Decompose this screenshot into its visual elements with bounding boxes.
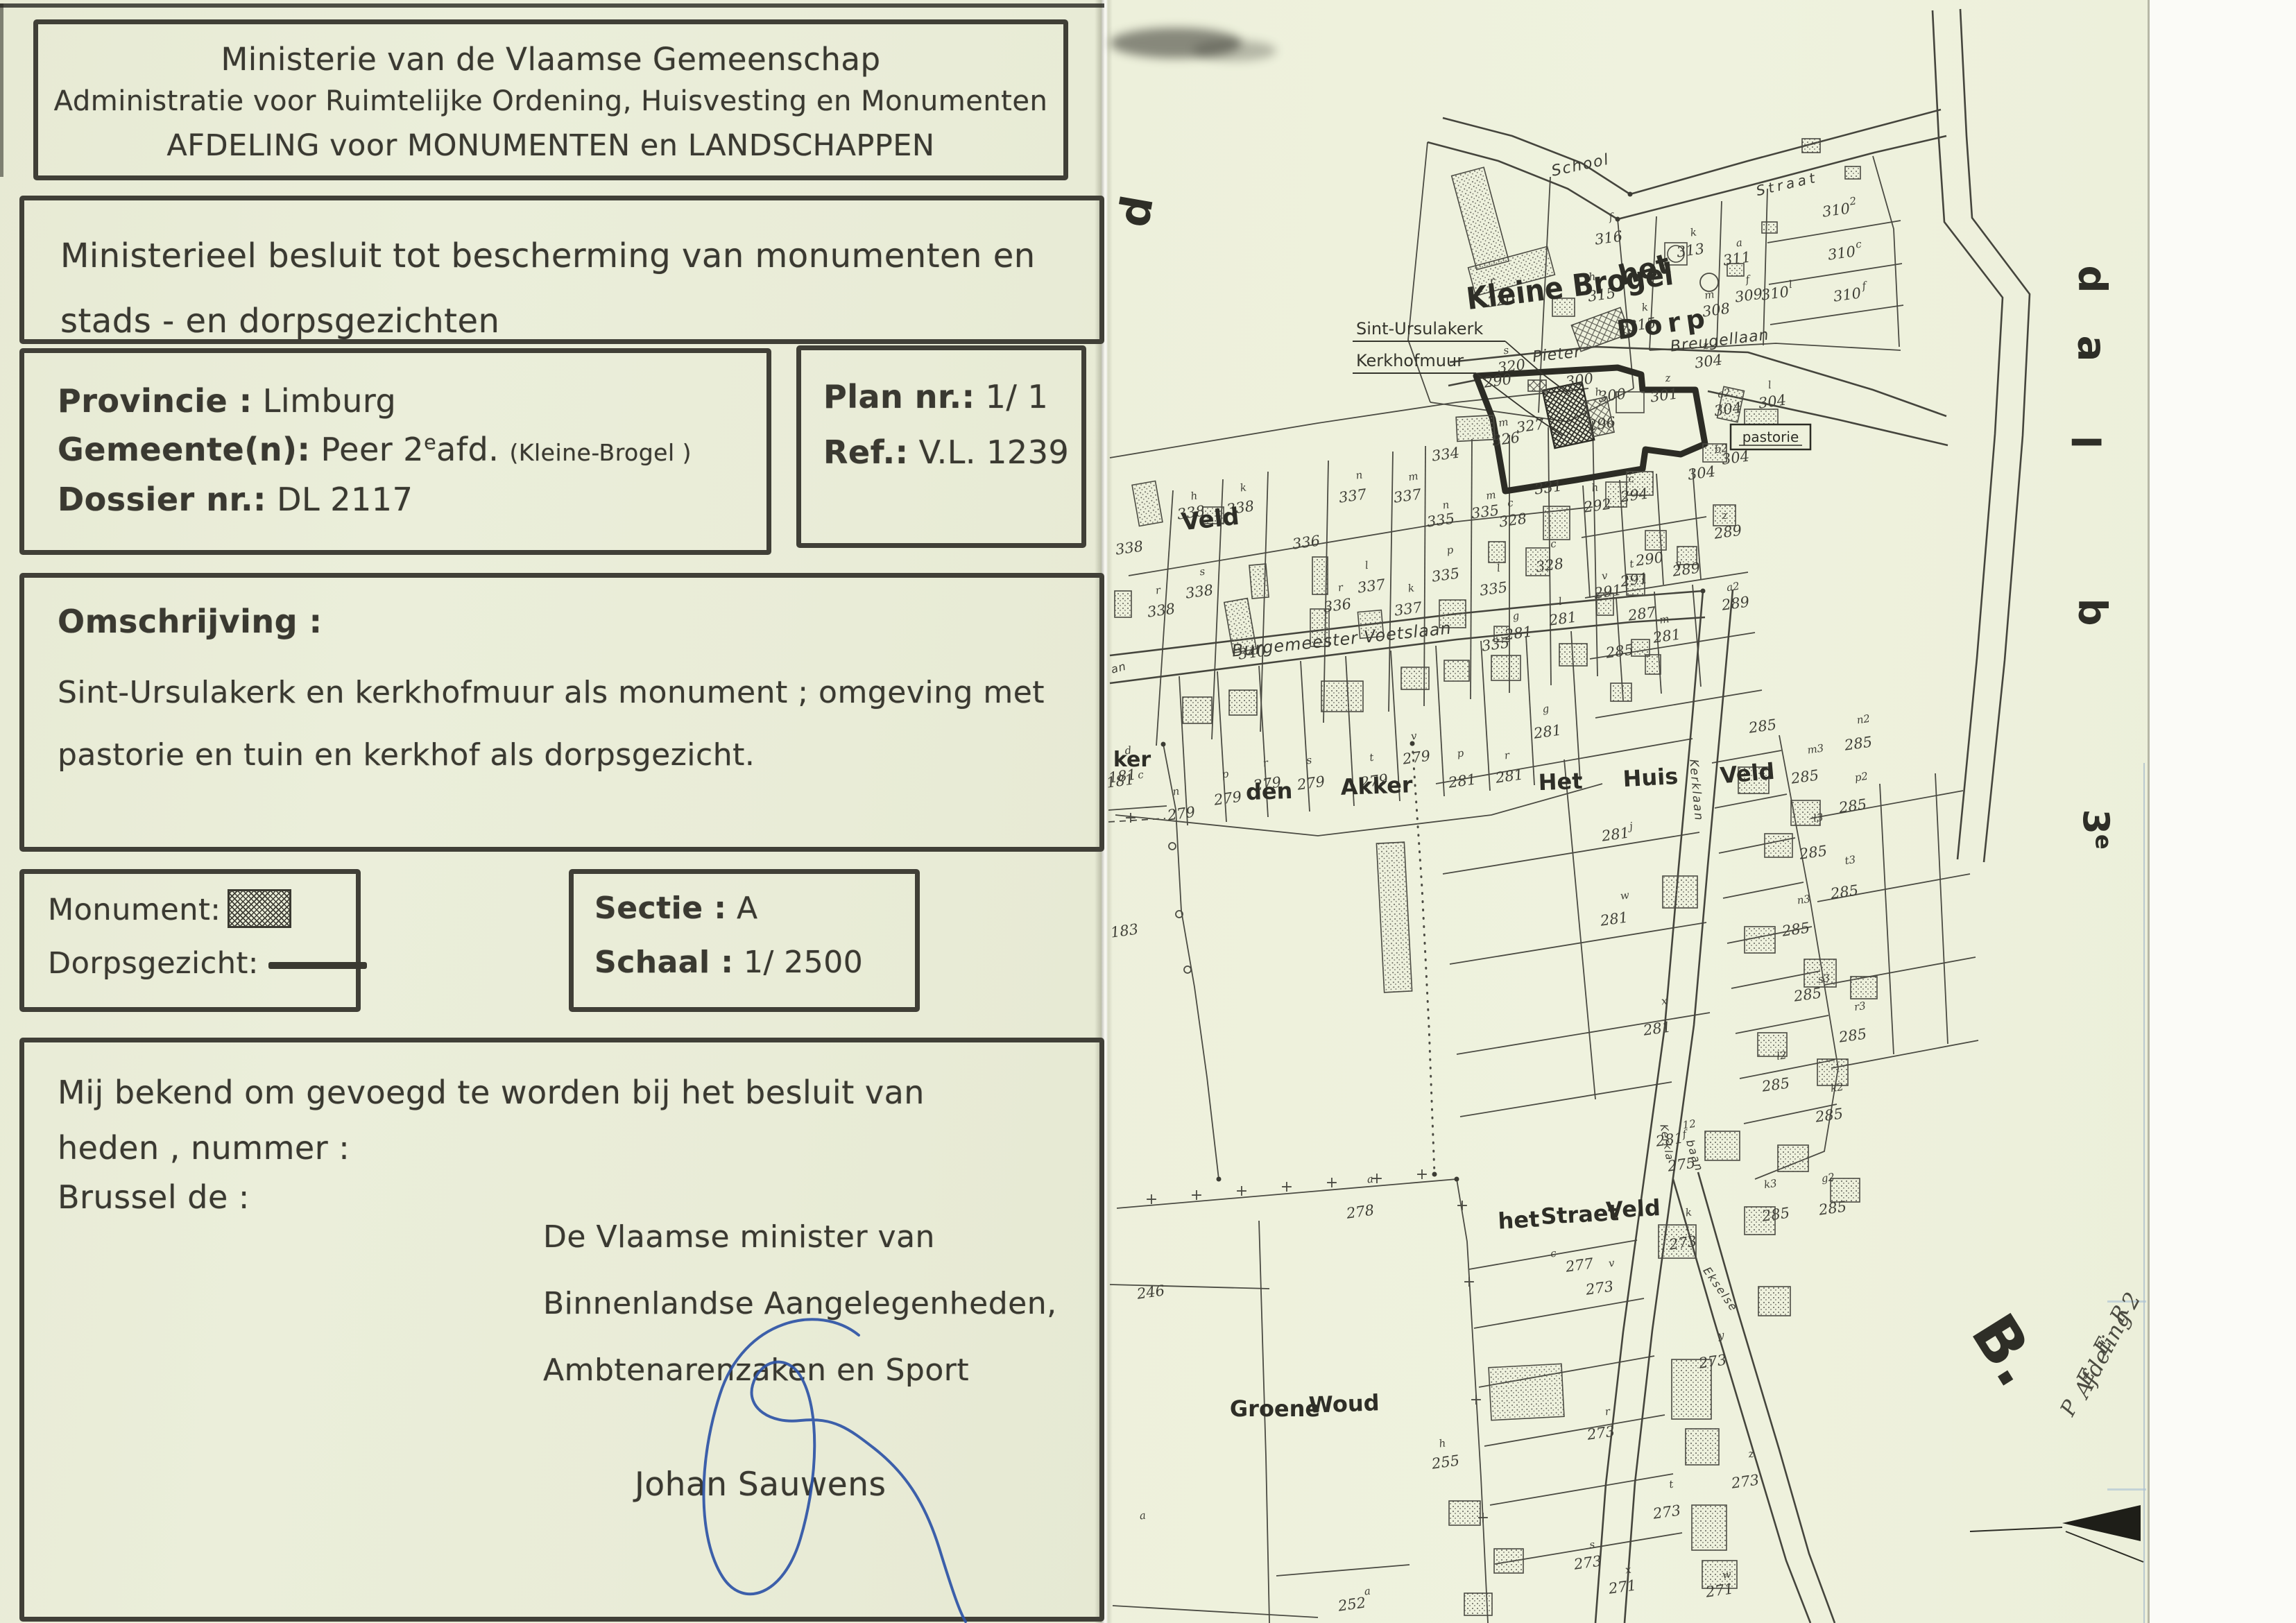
monument-label: Monument: (48, 893, 221, 927)
parcel-label: r (1337, 581, 1344, 594)
building (1456, 415, 1495, 442)
parcel-label: 310 (1833, 284, 1862, 304)
building (1845, 166, 1860, 179)
parcel-label: l2 (1776, 1049, 1788, 1063)
parcel-label: 304 (1758, 391, 1788, 411)
parcel-label: 252 (1337, 1594, 1367, 1614)
boundary-cross: + (1190, 1187, 1203, 1204)
parcel-label: m (1498, 415, 1509, 429)
parcel-label: l3 (1813, 811, 1824, 825)
plan-box: Plan nr.: 1/ 1 Ref.: V.L. 1239 (796, 345, 1086, 548)
parcel-label: 304 (1687, 463, 1717, 483)
parcel-label: k (1690, 226, 1698, 239)
road-line (1625, 590, 1733, 1623)
parcel-label: 285 (1760, 1204, 1791, 1224)
building (1543, 506, 1570, 540)
province-label: Provincie : (58, 382, 252, 420)
parcel-label: g (1511, 609, 1520, 622)
parcel-label: a2 (1726, 580, 1740, 594)
sheet-word-letter: a (2068, 336, 2114, 362)
parcel-label: s3 (1817, 972, 1831, 986)
parcel-label: 337 (1394, 599, 1424, 619)
building (1115, 591, 1131, 617)
parcel-boundary (1824, 957, 1976, 985)
parcel-label: l (1558, 595, 1563, 608)
parcel-label: k3 (1763, 1177, 1778, 1191)
municipality-sup: e (424, 431, 436, 454)
boundary-dot (1628, 192, 1633, 197)
parcel-boundary (1276, 1565, 1410, 1576)
parcel-label: 273 (1573, 1552, 1603, 1572)
building (1758, 1287, 1790, 1316)
parcel-boundary (1770, 305, 1903, 325)
area-label: Veld (1180, 503, 1240, 537)
municipality-label: Gemeente(n): (58, 431, 310, 468)
dossier-value: DL 2117 (277, 481, 413, 518)
parcel-label: t (1369, 751, 1375, 764)
parcel-label: 291 (1593, 581, 1623, 601)
parcel-label: 285 (1843, 733, 1874, 753)
description-box: Omschrijving : Sint-Ursulakerk en kerkho… (19, 573, 1104, 852)
sectie-label: Sectie : (594, 891, 726, 926)
parcel-label: b2 (1714, 442, 1729, 456)
building (1765, 834, 1792, 857)
scanned-decree-page: Ministerie van de Vlaamse Gemeenschap Ad… (0, 0, 2296, 1623)
building (1489, 1364, 1564, 1420)
building (1464, 1593, 1492, 1615)
parcel-label: w (1620, 888, 1630, 902)
parcel-boundary (1108, 806, 1167, 810)
parcel-label: 290 (1634, 549, 1665, 569)
parcel-label: r3 (1853, 999, 1867, 1013)
sheet-number: 3e (2074, 809, 2116, 850)
survey-point (1169, 843, 1176, 850)
monument-building (1543, 382, 1594, 448)
parcel-label: v (1410, 729, 1418, 742)
parcel-boundary (1810, 791, 1963, 818)
parcel-label: g2 (1821, 1171, 1835, 1185)
parcel-boundary (1260, 472, 1268, 732)
parcel-boundary (1656, 474, 1663, 585)
parcel-label: s (1199, 565, 1206, 578)
parcel-label: t (1629, 558, 1635, 571)
parcel-label: 310 (1760, 283, 1790, 303)
parcel-label: v (1601, 569, 1609, 582)
building (1183, 697, 1212, 723)
legend-box: Monument: Dorpsgezicht: (19, 869, 361, 1012)
ref-value: V.L. 1239 (919, 433, 1070, 471)
parcel-label: 285 (1837, 1025, 1868, 1045)
parcel-label: 279 (1213, 788, 1243, 808)
survey-point (1184, 966, 1191, 973)
parcel-label: 327 (1516, 415, 1546, 436)
parcel-label: t (1668, 1478, 1674, 1491)
parcel-label: l (1496, 562, 1501, 575)
parcel-label: 289 (1720, 593, 1751, 613)
location-box: Provincie : Limburg Gemeente(n): Peer 2e… (19, 348, 771, 555)
parcel-label: n (1441, 498, 1450, 511)
parcel-boundary (1481, 641, 1490, 791)
plan-value: 1/ 1 (986, 378, 1049, 415)
parcel-label: p (1446, 543, 1454, 556)
parcel-label: r (1262, 757, 1269, 770)
parcel-label: k (1407, 582, 1416, 595)
building (1489, 542, 1505, 563)
boundary-cross: + (1280, 1178, 1293, 1196)
boundary-dot (1455, 1177, 1459, 1182)
dorpsgezicht-line-swatch (268, 962, 367, 969)
parcel-label: 285 (1837, 796, 1868, 816)
decree-line2: stads - en dorpsgezichten (60, 302, 499, 341)
parcel-label: 311 (1722, 248, 1752, 268)
parcel-boundary (1457, 1013, 1710, 1054)
parcel-label: 278 (1345, 1201, 1376, 1221)
decree-line1: Ministerieel besluit tot bescherming van… (60, 237, 1036, 275)
parcel-label: 285 (1747, 716, 1778, 736)
parcel-label: 335 (1479, 578, 1509, 599)
sectie-row: Sectie : A (594, 891, 758, 926)
parcel-boundary (1259, 1221, 1269, 1623)
parcel-label: 338 (1115, 538, 1145, 558)
parcel-label: 326 (1491, 429, 1521, 449)
boundary-cross: + (1463, 1273, 1475, 1291)
parcel-label: n (1172, 784, 1180, 798)
parcel-label: 285 (1792, 984, 1823, 1004)
parcel-label: 336 (1292, 532, 1321, 552)
parcel-label: 279 (1296, 773, 1326, 793)
plan-label: Plan nr.: (823, 378, 975, 415)
boundary-dot (1161, 742, 1166, 747)
parcel-label: k (1240, 481, 1248, 495)
parcel-label: y (1717, 1328, 1725, 1341)
parcel-label: 281 (1548, 608, 1578, 628)
section-box: Sectie : A Schaal : 1/ 2500 (569, 869, 920, 1012)
building (1494, 1549, 1523, 1573)
parcel-label: w (1722, 1568, 1732, 1581)
parcel-boundary (1460, 1082, 1672, 1117)
parcel-label: k (1685, 1206, 1693, 1219)
dorpsgezicht-label: Dorpsgezicht: (48, 946, 259, 981)
street-label: Kerklaan (1686, 759, 1706, 823)
north-arrow-wedge (2062, 1505, 2141, 1541)
building (1229, 690, 1257, 715)
parcel-label: 279 (1401, 747, 1432, 767)
parcel-label: m (1659, 612, 1670, 626)
parcel-label: h (1591, 481, 1599, 494)
parcel-label: k2 (1830, 1081, 1844, 1094)
building (1321, 681, 1363, 712)
building (1802, 139, 1820, 153)
parcel-label: l (1788, 278, 1793, 291)
parcel-label: 328 (1535, 555, 1565, 575)
parcel-label: a (1364, 1585, 1371, 1598)
municipality-value: Peer 2 (321, 431, 425, 468)
dotted-boundary (1412, 744, 1434, 1174)
boundary-dot (1616, 217, 1620, 222)
building (1686, 1429, 1719, 1465)
parcel-label: 281 (1447, 771, 1477, 791)
building (1745, 927, 1775, 953)
callout-label: Kerkhofmuur (1356, 351, 1464, 370)
monument-hatch-swatch (228, 889, 291, 928)
cadastral-map: ++++++++++++316f320r315h315k320s313k311a… (1107, 0, 2296, 1623)
pastorie-label: pastorie (1742, 429, 1799, 445)
building (1692, 1505, 1727, 1550)
building (1132, 481, 1163, 526)
parcel-label: 285 (1829, 882, 1860, 902)
parcel-label: h (1438, 1436, 1446, 1450)
description-label: Omschrijving : (58, 603, 323, 640)
parcel-label: 335 (1471, 501, 1500, 522)
building (1611, 683, 1631, 701)
area-label: Het (1538, 768, 1583, 796)
parcel-label: 273 (1730, 1471, 1760, 1491)
sheet-word-letter: d (2070, 265, 2115, 293)
boundary-dot (1432, 1172, 1437, 1177)
parcel-label: 273 (1652, 1502, 1682, 1522)
parcel-label: 255 (1430, 1452, 1461, 1472)
closing-line1: Mij bekend om gevoegd te worden bij het … (58, 1074, 925, 1111)
closing-line2: heden , nummer : (58, 1129, 350, 1167)
parcel-label: n (1355, 468, 1363, 481)
parcel-label: 294 (1619, 485, 1650, 505)
parcel-boundary (1564, 759, 1595, 1099)
province-row: Provincie : Limburg (58, 382, 396, 420)
sheet-word-letter: b (2070, 598, 2115, 626)
parcel-label: l (1364, 559, 1369, 572)
road-line (1933, 10, 2003, 859)
scan-edge-left (0, 3, 3, 177)
building (1528, 380, 1546, 391)
parcel-label: 281 (1599, 909, 1629, 929)
province-value: Limburg (263, 382, 396, 420)
dorpsgezicht-legend-row: Dorpsgezicht: (48, 946, 367, 981)
building (1851, 977, 1877, 999)
road-line (1448, 380, 1476, 386)
area-label: ker (1113, 748, 1151, 772)
parcel-label: 313 (1676, 240, 1706, 260)
parcel-label: 279 (1166, 803, 1197, 823)
parcel-label: 310 (1827, 243, 1857, 263)
north-arrow-line (1970, 1527, 2062, 1531)
parcel-label: m (1485, 488, 1497, 502)
parcel-label: 285 (1814, 1105, 1844, 1125)
parcel-label: 285 (1760, 1074, 1791, 1094)
parcel-boundary (1450, 922, 1706, 964)
building (1663, 876, 1697, 908)
parcel-boundary (1715, 794, 1787, 808)
parcel-boundary (1436, 646, 1444, 796)
building (1705, 1131, 1740, 1160)
parcel-label: v (1608, 1256, 1616, 1269)
parcel-label: 273 (1697, 1351, 1728, 1371)
parcel-boundary (1490, 1474, 1673, 1505)
parcel-label: 316 (1594, 227, 1624, 248)
parcel-label: c (1855, 237, 1862, 250)
decree-box: Ministerieel besluit tot bescherming van… (19, 196, 1104, 344)
parcel-label: 292 (1582, 495, 1613, 515)
parcel-boundary (1582, 517, 1706, 538)
parcel-label: 289 (1713, 522, 1743, 542)
boundary-cross: + (1470, 1391, 1482, 1409)
parcel-label: h (1594, 385, 1602, 398)
street-label: Straat (1754, 169, 1819, 199)
sheet-word-letter: l (2062, 436, 2107, 449)
signatory-name: Johan Sauwens (635, 1466, 886, 1504)
boundary-cross: + (1235, 1183, 1248, 1200)
parcel-label: 336 (1323, 595, 1353, 615)
parcel-boundary (1880, 784, 1894, 1054)
parcel-label: 281 (1600, 824, 1631, 844)
description-line2: pastorie en tuin en kerkhof als dorpsgez… (58, 737, 755, 773)
dossier-label: Dossier nr.: (58, 481, 266, 518)
parcel-label: 335 (1426, 510, 1456, 530)
boundary-cross: + (1477, 1509, 1489, 1527)
parcel-label: n3 (1797, 893, 1812, 907)
area-label: Veld (1719, 758, 1776, 789)
parcel-label: n2 (1856, 712, 1871, 726)
parcel-label: l (1767, 379, 1772, 392)
parcel-label: 183 (1110, 920, 1140, 941)
parcel-label: 285 (1798, 842, 1828, 862)
parcel-boundary (1110, 1285, 1269, 1289)
parcel-boundary (1717, 201, 1722, 347)
plan-row: Plan nr.: 1/ 1 (823, 378, 1048, 415)
parcel-label: 309 (1734, 285, 1764, 305)
parcel-label: t3 (1844, 853, 1856, 867)
schaal-value: 1/ 2500 (744, 945, 863, 980)
building (1376, 842, 1412, 993)
schaal-row: Schaal : 1/ 2500 (594, 945, 863, 980)
building (1249, 564, 1269, 599)
parcel-boundary (1763, 189, 1767, 345)
monument-legend-row: Monument: (48, 889, 291, 928)
closing-line3: Brussel de : (58, 1178, 250, 1216)
parcel-label: g (1541, 702, 1550, 715)
municipality-suffix: afd. (436, 431, 499, 468)
building (1449, 1501, 1480, 1525)
parcel-label: 277 (1564, 1255, 1595, 1276)
parcel-label: 300 (1565, 370, 1595, 390)
parcel-label: 285 (1790, 766, 1820, 787)
street-label: an (1110, 660, 1128, 676)
building (1401, 667, 1429, 689)
parcel-label: 338 (1185, 581, 1215, 601)
boundary-cross: + (1416, 1166, 1428, 1183)
minister-line3: Ambtenarenzaken en Sport (543, 1352, 969, 1388)
ref-label: Ref.: (823, 433, 909, 471)
municipality-row: Gemeente(n): Peer 2eafd. (Kleine-Brogel … (58, 431, 692, 468)
sectie-value: A (737, 891, 758, 926)
header-box: Ministerie van de Vlaamse Gemeenschap Ad… (33, 19, 1068, 180)
area-label: Woud (1308, 1389, 1380, 1418)
parcel-label: 285 (1604, 641, 1635, 661)
boundary-cross: + (1124, 809, 1137, 827)
building (1559, 644, 1587, 666)
minister-line2: Binnenlandse Aangelegenheden, (543, 1286, 1057, 1321)
boundary-cross: + (1145, 1191, 1158, 1208)
dossier-row: Dossier nr.: DL 2117 (58, 481, 413, 518)
parcel-label: x (1625, 1563, 1632, 1576)
parcel-label: a2 (1717, 386, 1731, 400)
building (1645, 531, 1666, 550)
building (1762, 222, 1777, 233)
parcel-label: 301 (1650, 385, 1679, 405)
parcel-label: r (1504, 749, 1511, 762)
parcel-boundary (1873, 156, 1899, 347)
parcel-label: 304 (1694, 351, 1724, 371)
parcel-label: p2 (1854, 770, 1869, 784)
boundary-cross: + (1456, 1197, 1468, 1214)
street-label: Ekselse (1700, 1264, 1740, 1314)
parcel-label: s (1502, 344, 1509, 357)
parcel-label: 310 (1822, 200, 1851, 220)
parcel-boundary (1831, 1040, 1978, 1068)
scan-edge-top (0, 3, 1104, 8)
parcel-label: f (1860, 279, 1868, 292)
parcel-label: 335 (1431, 565, 1461, 585)
parcel-label: 338 (1147, 600, 1176, 620)
parcel-label: 337 (1338, 486, 1369, 506)
parcel-label: 273 (1584, 1278, 1615, 1298)
area-label: den (1245, 778, 1293, 805)
parcel-label: 281 (1532, 721, 1563, 741)
parcel-label: 281 (1494, 766, 1525, 786)
boundary-dot (1701, 589, 1706, 594)
ministry-title: Ministerie van de Vlaamse Gemeenschap (38, 41, 1063, 78)
parcel-label: 337 (1393, 486, 1423, 506)
parcel-label: f (1744, 273, 1751, 286)
minister-line1: De Vlaamse minister van (543, 1219, 935, 1255)
area-label: het (1498, 1205, 1541, 1234)
parcel-boundary (1593, 421, 1597, 676)
parcel-label: 281 (1652, 626, 1682, 646)
building (1312, 557, 1328, 594)
parcel-boundary (1736, 1015, 1828, 1033)
administration-title: Administratie voor Ruimtelijke Ordening,… (38, 85, 1063, 117)
parcel-label: m (1704, 288, 1715, 302)
parcel-label: 281 (1642, 1018, 1672, 1038)
area-label: Huis (1622, 763, 1679, 792)
boundary-cross: + (1326, 1174, 1338, 1192)
parcel-boundary (1526, 636, 1534, 785)
parcel-label: 328 (1498, 510, 1528, 530)
parcel-label: c (1550, 1246, 1557, 1260)
building (1491, 655, 1520, 680)
parcel-label: 285 (1781, 919, 1811, 939)
division-title: AFDELING voor MONUMENTEN en LANDSCHAPPEN (38, 128, 1063, 163)
boundary-dot (1217, 1177, 1222, 1182)
parcel-label: 246 (1136, 1282, 1166, 1302)
parcel-label: r (1604, 1405, 1611, 1418)
building (1452, 167, 1509, 270)
building (1778, 1145, 1808, 1171)
parcel-label: h (1190, 489, 1198, 502)
closing-box: Mij bekend om gevoegd te worden bij het … (19, 1038, 1104, 1622)
parcel-label: 271 (1704, 1580, 1735, 1600)
callout-label: Sint-Ursulakerk (1356, 319, 1483, 338)
building (1444, 660, 1469, 681)
parcel-label: 331 (1534, 477, 1563, 497)
parcel-label: p (1456, 746, 1464, 759)
area-label: Groene (1230, 1396, 1320, 1422)
parcel-label: 285 (1817, 1198, 1848, 1218)
street-label: Pieter (1532, 343, 1582, 366)
parcel-boundary (1767, 221, 1901, 243)
parcel-boundary (1113, 1606, 1318, 1617)
building (1645, 655, 1661, 674)
schaal-label: Schaal : (594, 945, 733, 980)
